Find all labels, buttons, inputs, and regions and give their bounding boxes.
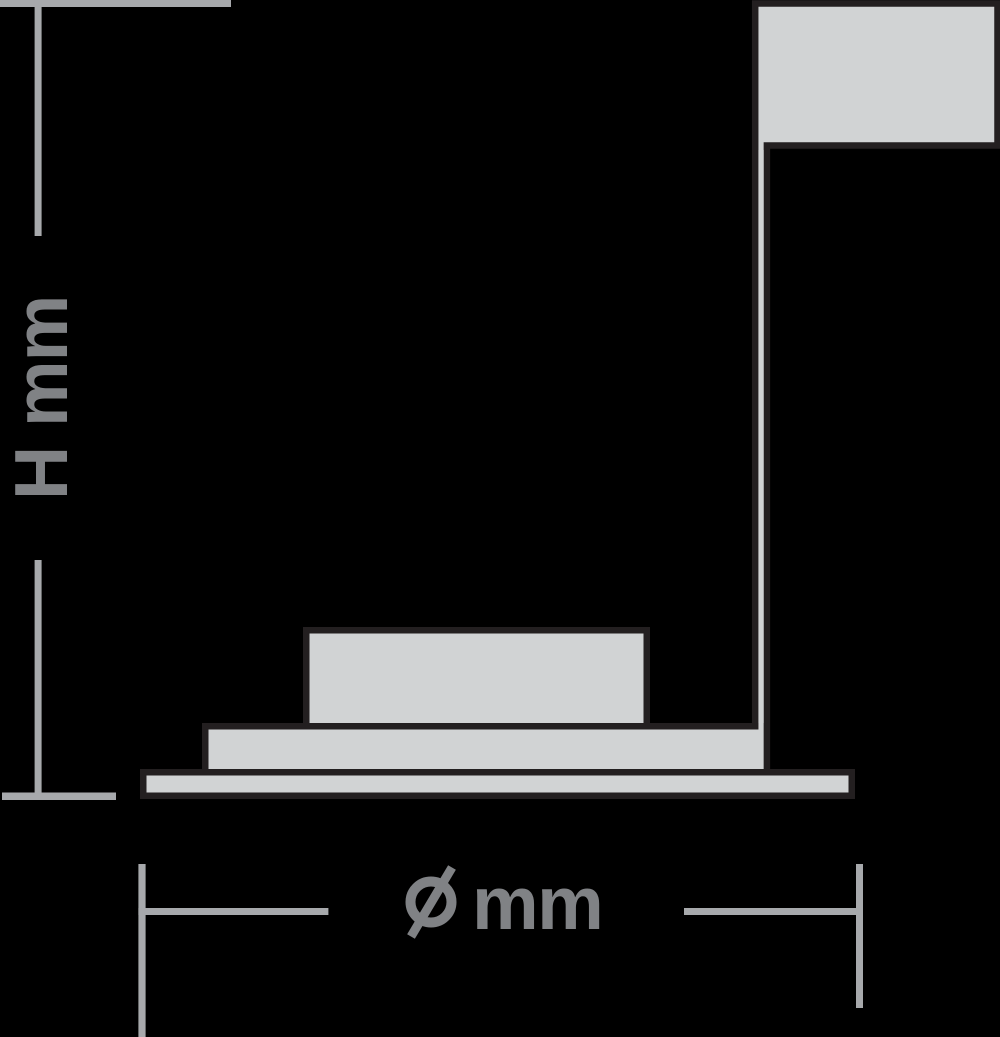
svg-text:mm: mm bbox=[472, 861, 602, 945]
svg-text:H mm: H mm bbox=[0, 296, 83, 500]
